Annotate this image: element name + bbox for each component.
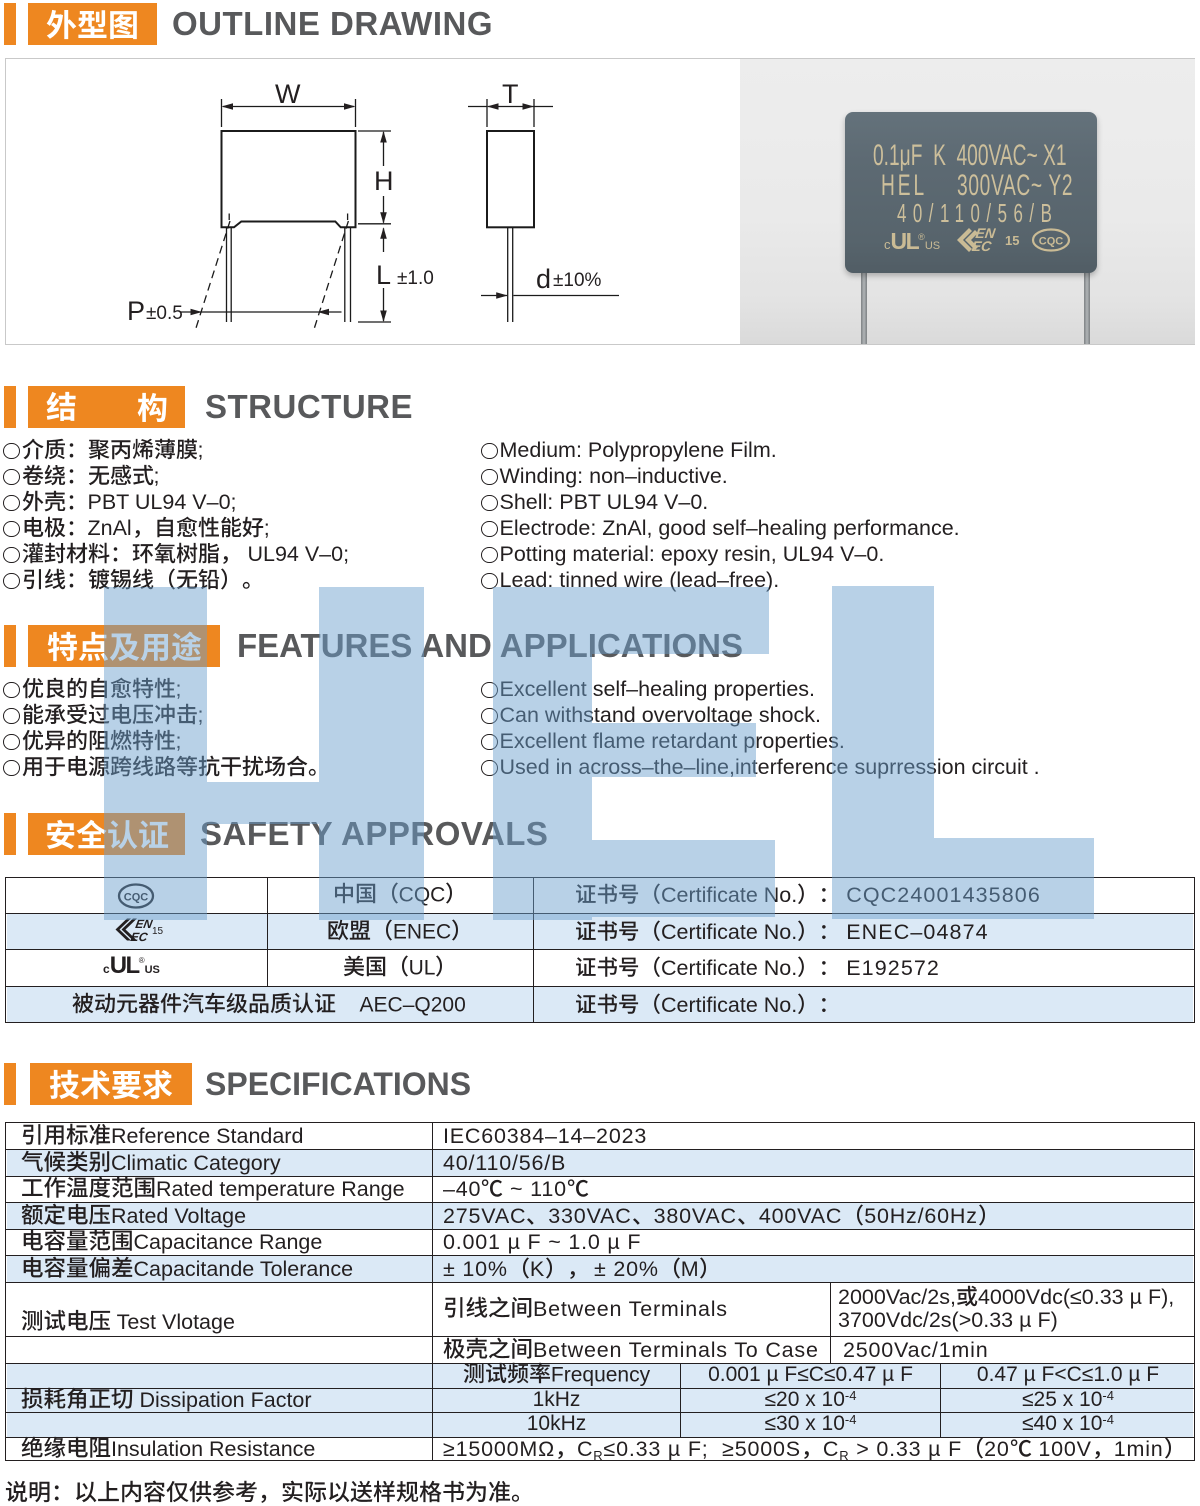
svg-text:L: L [376,260,391,290]
svg-text:±10%: ±10% [553,270,602,291]
svg-text:H: H [374,166,394,196]
svg-text:EC: EC [971,238,994,254]
svg-text:CQC: CQC [1039,236,1064,248]
svg-text:±0.5: ±0.5 [146,303,183,324]
svg-text:T: T [502,79,519,109]
svg-text:d: d [536,264,551,294]
svg-text:15: 15 [1005,233,1019,248]
svg-text:W: W [275,79,301,109]
svg-text:±1.0: ±1.0 [397,268,434,289]
svg-text:P: P [127,296,145,326]
